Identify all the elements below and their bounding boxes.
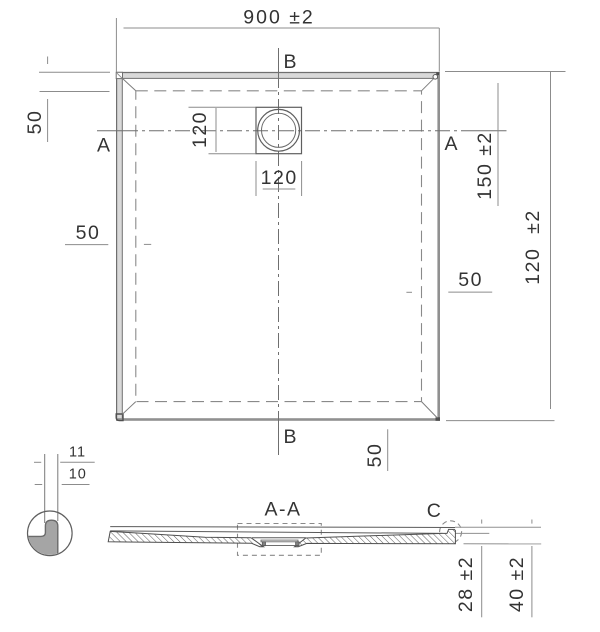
svg-text:28 ±2: 28 ±2 [455,556,477,612]
svg-text:120: 120 [189,111,211,148]
svg-text:50: 50 [24,110,46,135]
svg-text:50: 50 [458,269,483,291]
svg-text:50: 50 [364,443,386,468]
svg-text:150 ±2: 150 ±2 [474,131,496,200]
svg-text:A-A: A-A [264,499,301,521]
svg-text:B: B [284,51,297,73]
svg-text:120 ±2: 120 ±2 [522,209,544,284]
svg-text:11: 11 [69,445,86,461]
svg-text:A: A [445,133,458,155]
svg-text:40 ±2: 40 ±2 [506,556,528,612]
svg-text:10: 10 [69,467,87,483]
svg-text:A: A [97,135,110,157]
svg-text:50: 50 [76,222,101,244]
svg-text:900 ±2: 900 ±2 [243,7,315,29]
svg-text:B: B [284,426,297,448]
svg-text:120: 120 [261,167,298,189]
svg-text:C: C [427,500,441,522]
